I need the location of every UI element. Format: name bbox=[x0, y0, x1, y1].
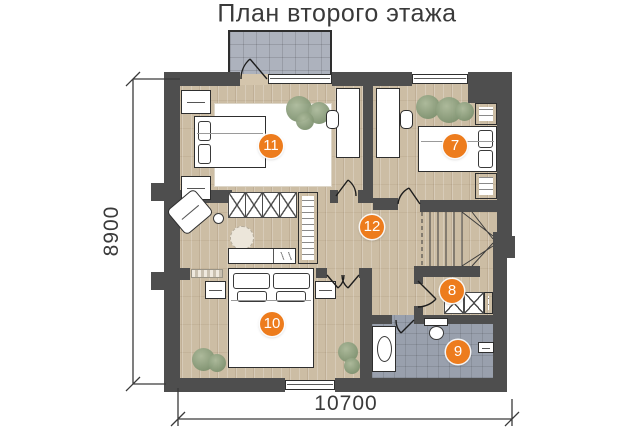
bed bbox=[194, 116, 266, 168]
wall bbox=[316, 268, 327, 278]
nightstand bbox=[181, 90, 211, 114]
toilet-cistern bbox=[424, 318, 448, 326]
desk bbox=[376, 88, 400, 158]
wall bbox=[372, 315, 392, 324]
window bbox=[285, 380, 335, 390]
wall bbox=[330, 190, 338, 203]
wall bbox=[360, 270, 372, 378]
room-badge-8: 8 bbox=[440, 279, 464, 303]
room-badge-7: 7 bbox=[443, 134, 467, 158]
wall bbox=[414, 266, 480, 277]
dresser bbox=[228, 248, 296, 264]
cabinet bbox=[475, 173, 497, 199]
round-rug bbox=[230, 226, 254, 250]
wall bbox=[497, 72, 512, 236]
page-title: План второго этажа bbox=[217, 0, 456, 29]
chair bbox=[326, 110, 339, 129]
wall bbox=[420, 200, 497, 212]
pillow bbox=[273, 273, 310, 289]
window bbox=[412, 74, 468, 84]
room-badge-9: 9 bbox=[446, 340, 470, 364]
desk bbox=[336, 88, 360, 158]
wall bbox=[373, 198, 398, 210]
room-badge-11: 11 bbox=[259, 134, 283, 158]
washbasin bbox=[377, 336, 392, 362]
dresser-shelves bbox=[273, 249, 295, 263]
wall bbox=[164, 72, 180, 392]
plant-icon bbox=[296, 112, 314, 130]
plant-icon bbox=[208, 354, 226, 372]
pillow bbox=[198, 144, 211, 164]
pillow bbox=[233, 273, 270, 289]
wardrobe bbox=[298, 192, 318, 264]
pillow bbox=[276, 291, 306, 302]
floor-lamp bbox=[213, 213, 224, 224]
cabinet bbox=[475, 103, 497, 125]
nightstand bbox=[315, 281, 336, 299]
wall bbox=[493, 232, 507, 392]
plant-icon bbox=[344, 358, 360, 374]
chair bbox=[400, 110, 413, 129]
bench bbox=[191, 269, 223, 278]
closet-cell bbox=[228, 192, 246, 218]
room-badge-10: 10 bbox=[260, 312, 284, 336]
nightstand bbox=[205, 281, 226, 299]
closet-cell bbox=[245, 192, 263, 218]
closet-cell bbox=[262, 192, 280, 218]
pillow bbox=[478, 130, 493, 148]
wall bbox=[414, 266, 423, 284]
wall bbox=[363, 72, 373, 203]
height-dimension-label: 8900 bbox=[100, 206, 124, 257]
pillow bbox=[237, 291, 267, 302]
pillow bbox=[198, 121, 211, 141]
wall-pilaster bbox=[151, 272, 164, 290]
wall bbox=[335, 378, 507, 392]
plant-icon bbox=[455, 102, 474, 121]
wall bbox=[359, 268, 372, 278]
wall-pilaster bbox=[151, 183, 164, 201]
closet-cell bbox=[279, 192, 297, 218]
wall bbox=[164, 268, 190, 280]
toilet-bowl bbox=[429, 326, 444, 340]
wall bbox=[358, 190, 373, 203]
closet-cell bbox=[464, 292, 484, 314]
towel-rail bbox=[478, 342, 494, 353]
width-dimension-label: 10700 bbox=[314, 392, 377, 416]
room-badge-12: 12 bbox=[360, 215, 384, 239]
shelf bbox=[484, 292, 493, 314]
window bbox=[268, 74, 332, 84]
door-threshold bbox=[240, 74, 268, 85]
wall bbox=[164, 378, 285, 392]
pillow bbox=[478, 150, 493, 168]
floor-plan: План второго этажа bbox=[0, 0, 632, 433]
